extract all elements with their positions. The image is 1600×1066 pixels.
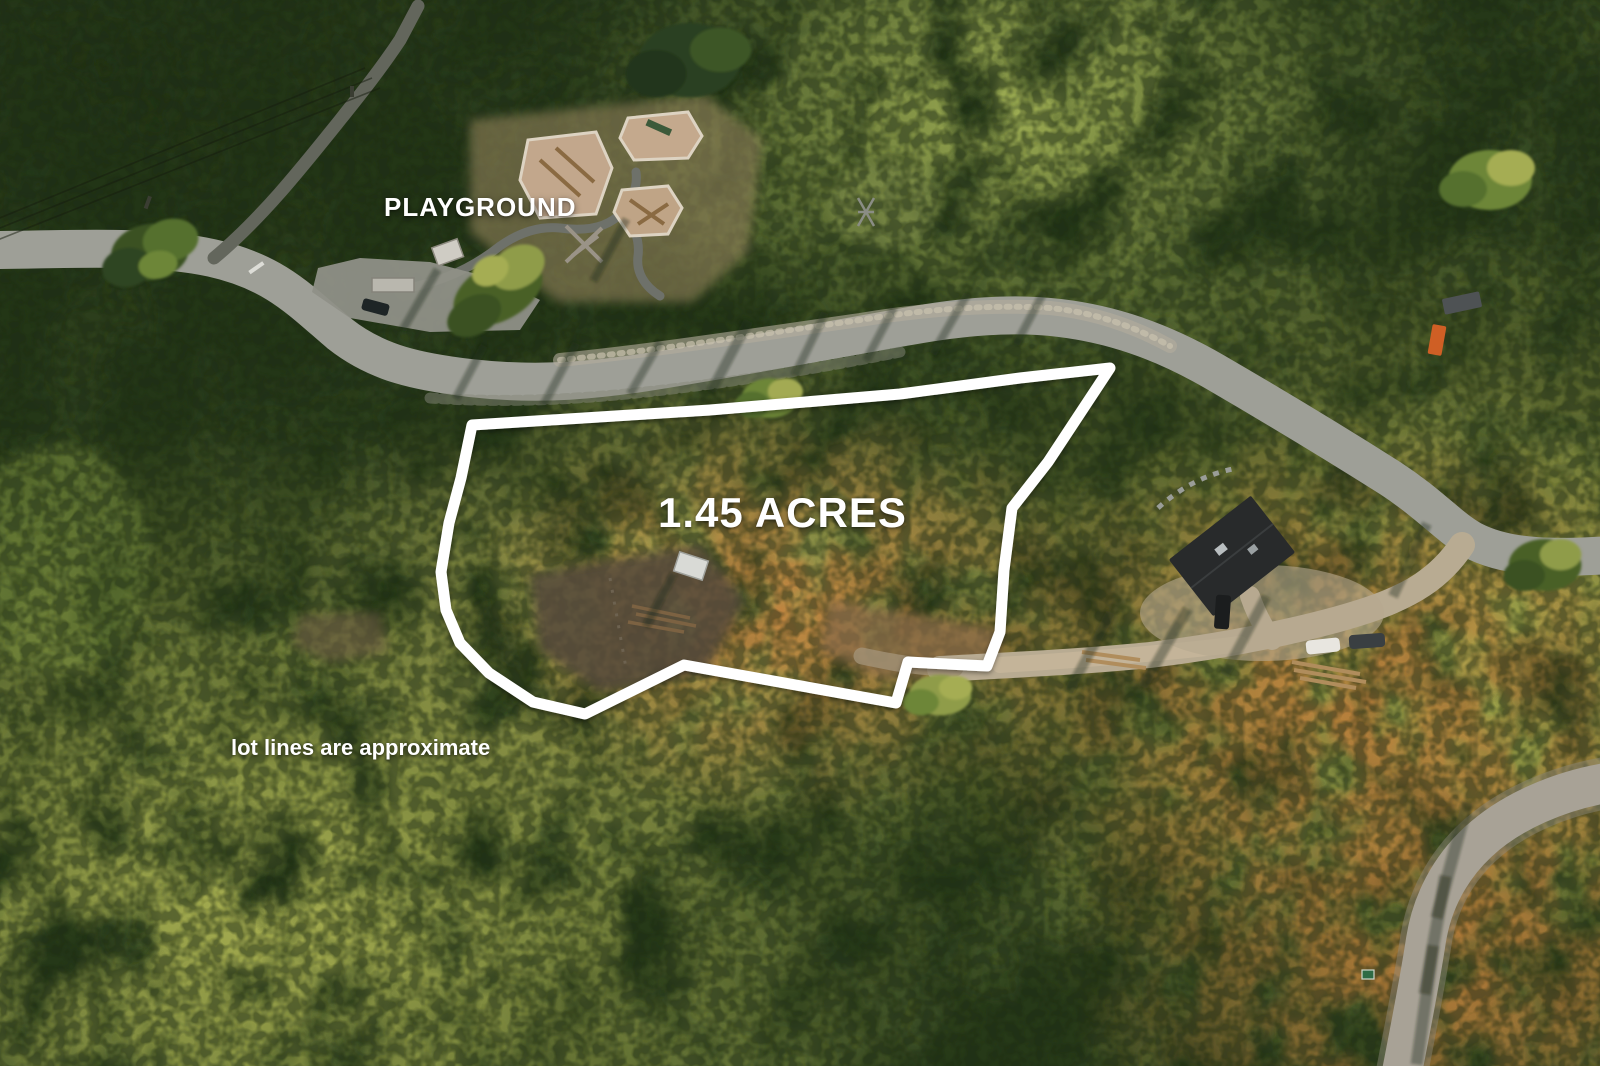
acreage-label: 1.45 ACRES <box>658 492 907 534</box>
gray-car <box>1349 633 1386 649</box>
disclaimer-label: lot lines are approximate <box>231 737 490 759</box>
playground-label: PLAYGROUND <box>384 194 577 220</box>
road-sign <box>1362 970 1374 979</box>
parking-shed <box>372 278 414 292</box>
playground-pad <box>620 112 702 160</box>
aerial-photo: PLAYGROUND 1.45 ACRES lot lines are appr… <box>0 0 1600 1066</box>
house-truck <box>1214 595 1231 630</box>
power-pole <box>350 86 354 97</box>
